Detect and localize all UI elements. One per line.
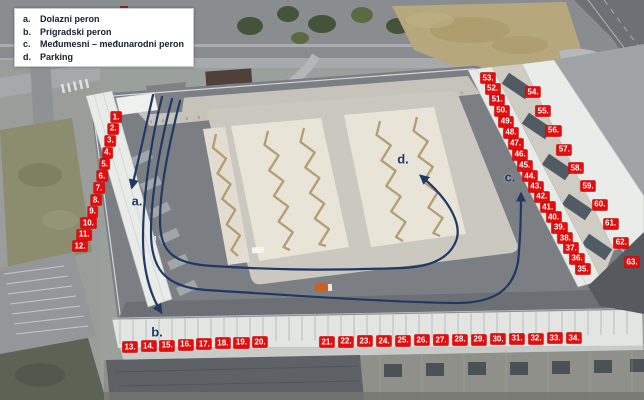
platform-number-label: 54.: [525, 87, 540, 98]
platform-number-label: 15.: [160, 340, 175, 351]
platform-number-label: 3.: [105, 135, 116, 146]
platform-number-label: 37.: [564, 243, 579, 254]
platform-number-label: 22.: [338, 336, 353, 347]
platform-number-label: 20.: [252, 337, 267, 348]
route-marker-c: c.: [505, 170, 516, 185]
platform-number-label: 49.: [499, 116, 514, 127]
legend: a. Dolazni peron b. Prigradski peron c. …: [14, 8, 194, 67]
platform-number-label: 35.: [575, 264, 590, 275]
platform-number-label: 25.: [395, 335, 410, 346]
platform-number-label: 53.: [480, 73, 495, 84]
legend-item-c: c. Međumesni – međunarodni peron: [23, 38, 184, 51]
platform-number-label: 13.: [122, 342, 137, 353]
platform-number-label: 18.: [215, 338, 230, 349]
platform-number-label: 2.: [108, 123, 119, 134]
platform-number-label: 29.: [471, 334, 486, 345]
platform-number-label: 31.: [509, 333, 524, 344]
platform-number-label: 5.: [99, 159, 110, 170]
legend-letter: b.: [23, 26, 40, 39]
route-marker-b: b.: [151, 325, 163, 340]
platform-number-label: 17.: [197, 339, 212, 350]
legend-item-b: b. Prigradski peron: [23, 26, 184, 39]
platform-number-label: 44.: [522, 171, 537, 182]
platform-number-label: 19.: [234, 337, 249, 348]
platform-number-label: 28.: [452, 334, 467, 345]
platform-number-label: 40.: [546, 212, 561, 223]
platform-number-label: 51.: [490, 94, 505, 105]
platform-number-label: 38.: [558, 233, 573, 244]
route-marker-d: d.: [397, 152, 409, 167]
platform-number-label: 48.: [503, 127, 518, 138]
platform-number-label: 14.: [141, 341, 156, 352]
platform-number-label: 57.: [557, 144, 572, 155]
platform-number-label: 42.: [534, 191, 549, 202]
orange-truck: [315, 283, 328, 292]
route-marker-a: a.: [132, 194, 143, 209]
platform-number-label: 9.: [87, 206, 98, 217]
platform-number-label: 33.: [547, 333, 562, 344]
legend-text: Parking: [40, 51, 73, 64]
platform-number-label: 58.: [569, 163, 584, 174]
legend-text: Dolazni peron: [40, 13, 100, 26]
platform-number-label: 1.: [111, 112, 122, 123]
platform-number-label: 43.: [528, 181, 543, 192]
platform-number-label: 39.: [552, 222, 567, 233]
platform-number-label: 10.: [81, 218, 96, 229]
platform-number-label: 32.: [528, 333, 543, 344]
platform-number-label: 63.: [624, 257, 639, 268]
legend-letter: d.: [23, 51, 40, 64]
platform-number-label: 59.: [580, 181, 595, 192]
platform-number-label: 27.: [433, 335, 448, 346]
legend-item-d: d. Parking: [23, 51, 184, 64]
legend-text: Prigradski peron: [40, 26, 112, 39]
platform-number-label: 4.: [102, 147, 113, 158]
platform-number-label: 36.: [570, 253, 585, 264]
platform-number-label: 21.: [319, 337, 334, 348]
platform-number-label: 55.: [536, 106, 551, 117]
legend-letter: a.: [23, 13, 40, 26]
platform-number-label: 16.: [178, 339, 193, 350]
platform-number-label: 47.: [508, 138, 523, 149]
platform-number-label: 50.: [494, 105, 509, 116]
platform-number-label: 41.: [540, 202, 555, 213]
platform-number-label: 8.: [91, 195, 102, 206]
slide-canvas: a. Dolazni peron b. Prigradski peron c. …: [0, 0, 644, 400]
platform-number-label: 30.: [490, 334, 505, 345]
platform-number-label: 61.: [603, 218, 618, 229]
legend-item-a: a. Dolazni peron: [23, 13, 184, 26]
platform-number-label: 45.: [517, 160, 532, 171]
platform-number-label: 60.: [592, 199, 607, 210]
platform-number-label: 52.: [485, 83, 500, 94]
platform-number-label: 7.: [94, 183, 105, 194]
platform-number-label: 26.: [414, 335, 429, 346]
platform-number-label: 34.: [566, 333, 581, 344]
platform-number-label: 56.: [546, 125, 561, 136]
platform-number-label: 62.: [614, 237, 629, 248]
platform-number-label: 46.: [513, 149, 528, 160]
platform-number-label: 23.: [357, 336, 372, 347]
platform-number-label: 11.: [77, 229, 92, 240]
platform-number-label: 24.: [376, 336, 391, 347]
legend-text: Međumesni – međunarodni peron: [40, 38, 184, 51]
platform-number-label: 12.: [72, 241, 87, 252]
legend-letter: c.: [23, 38, 40, 51]
platform-number-label: 6.: [97, 171, 108, 182]
